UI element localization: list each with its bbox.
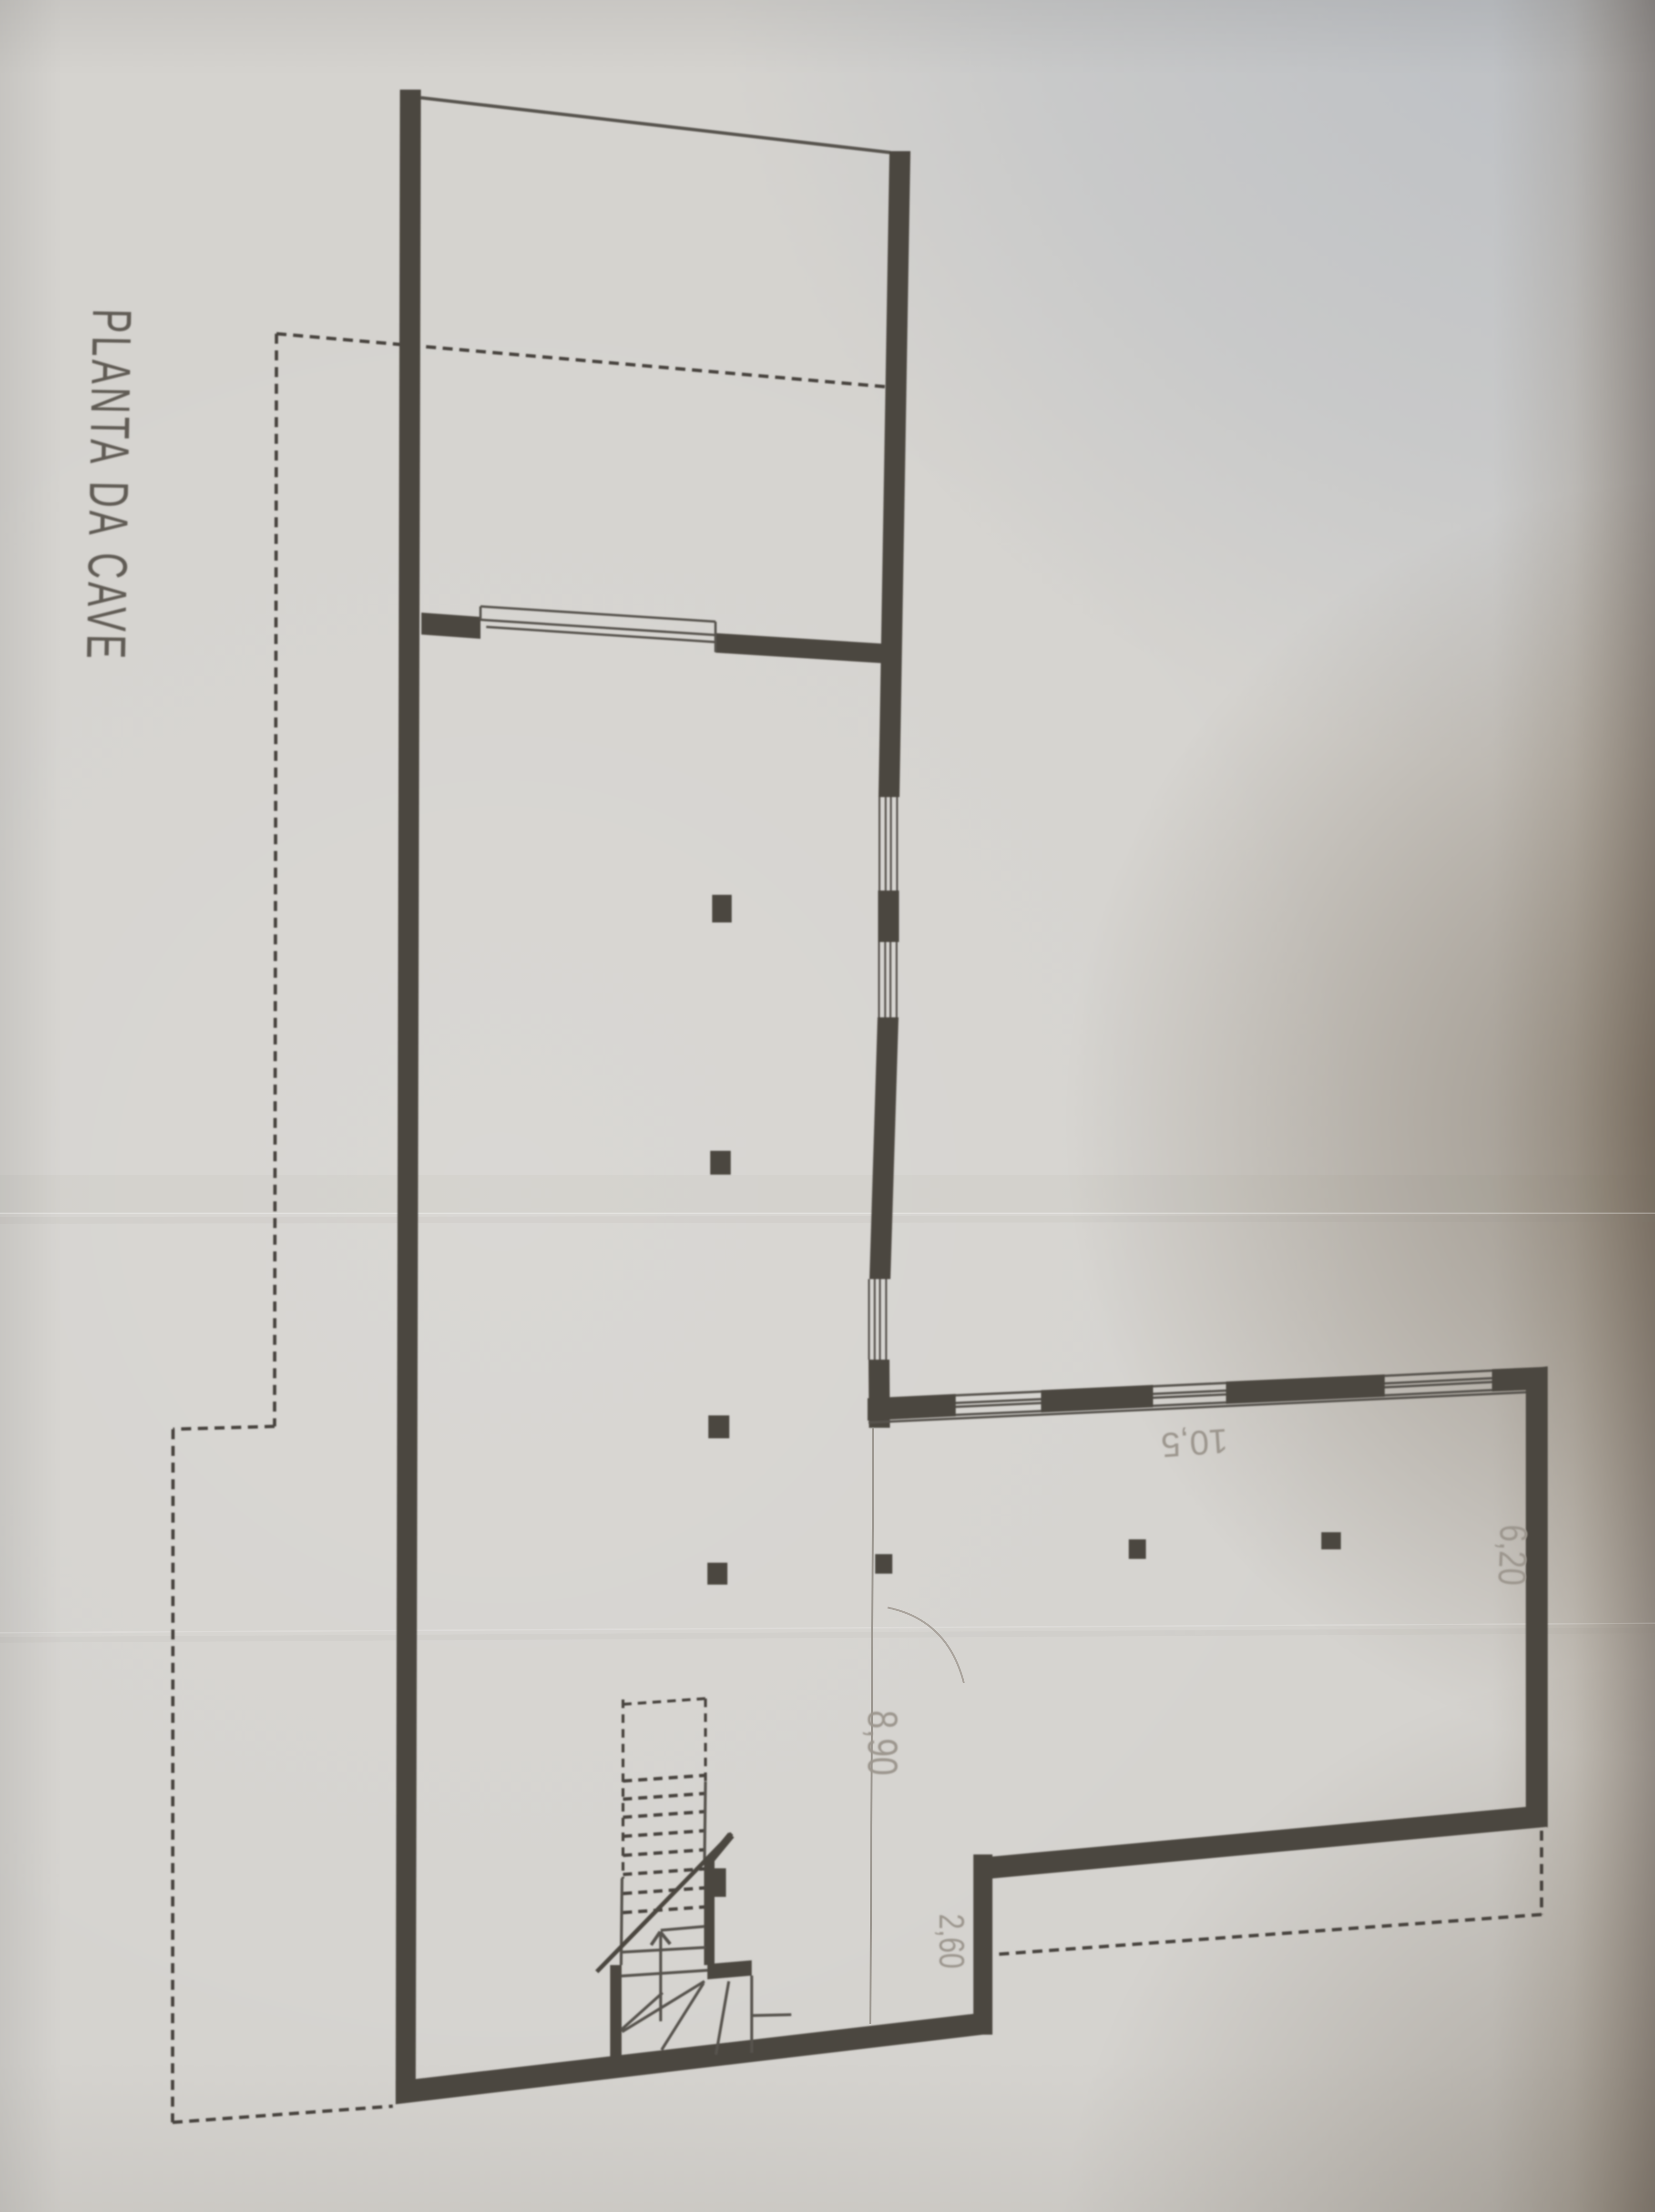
svg-text:2,60: 2,60 [932, 1914, 971, 1968]
svg-text:8,90: 8,90 [859, 1710, 906, 1775]
svg-text:10,5: 10,5 [1160, 1421, 1229, 1464]
svg-text:6,20: 6,20 [1490, 1524, 1536, 1587]
svg-text:PLANTA DA CAVE: PLANTA DA CAVE [75, 308, 143, 662]
